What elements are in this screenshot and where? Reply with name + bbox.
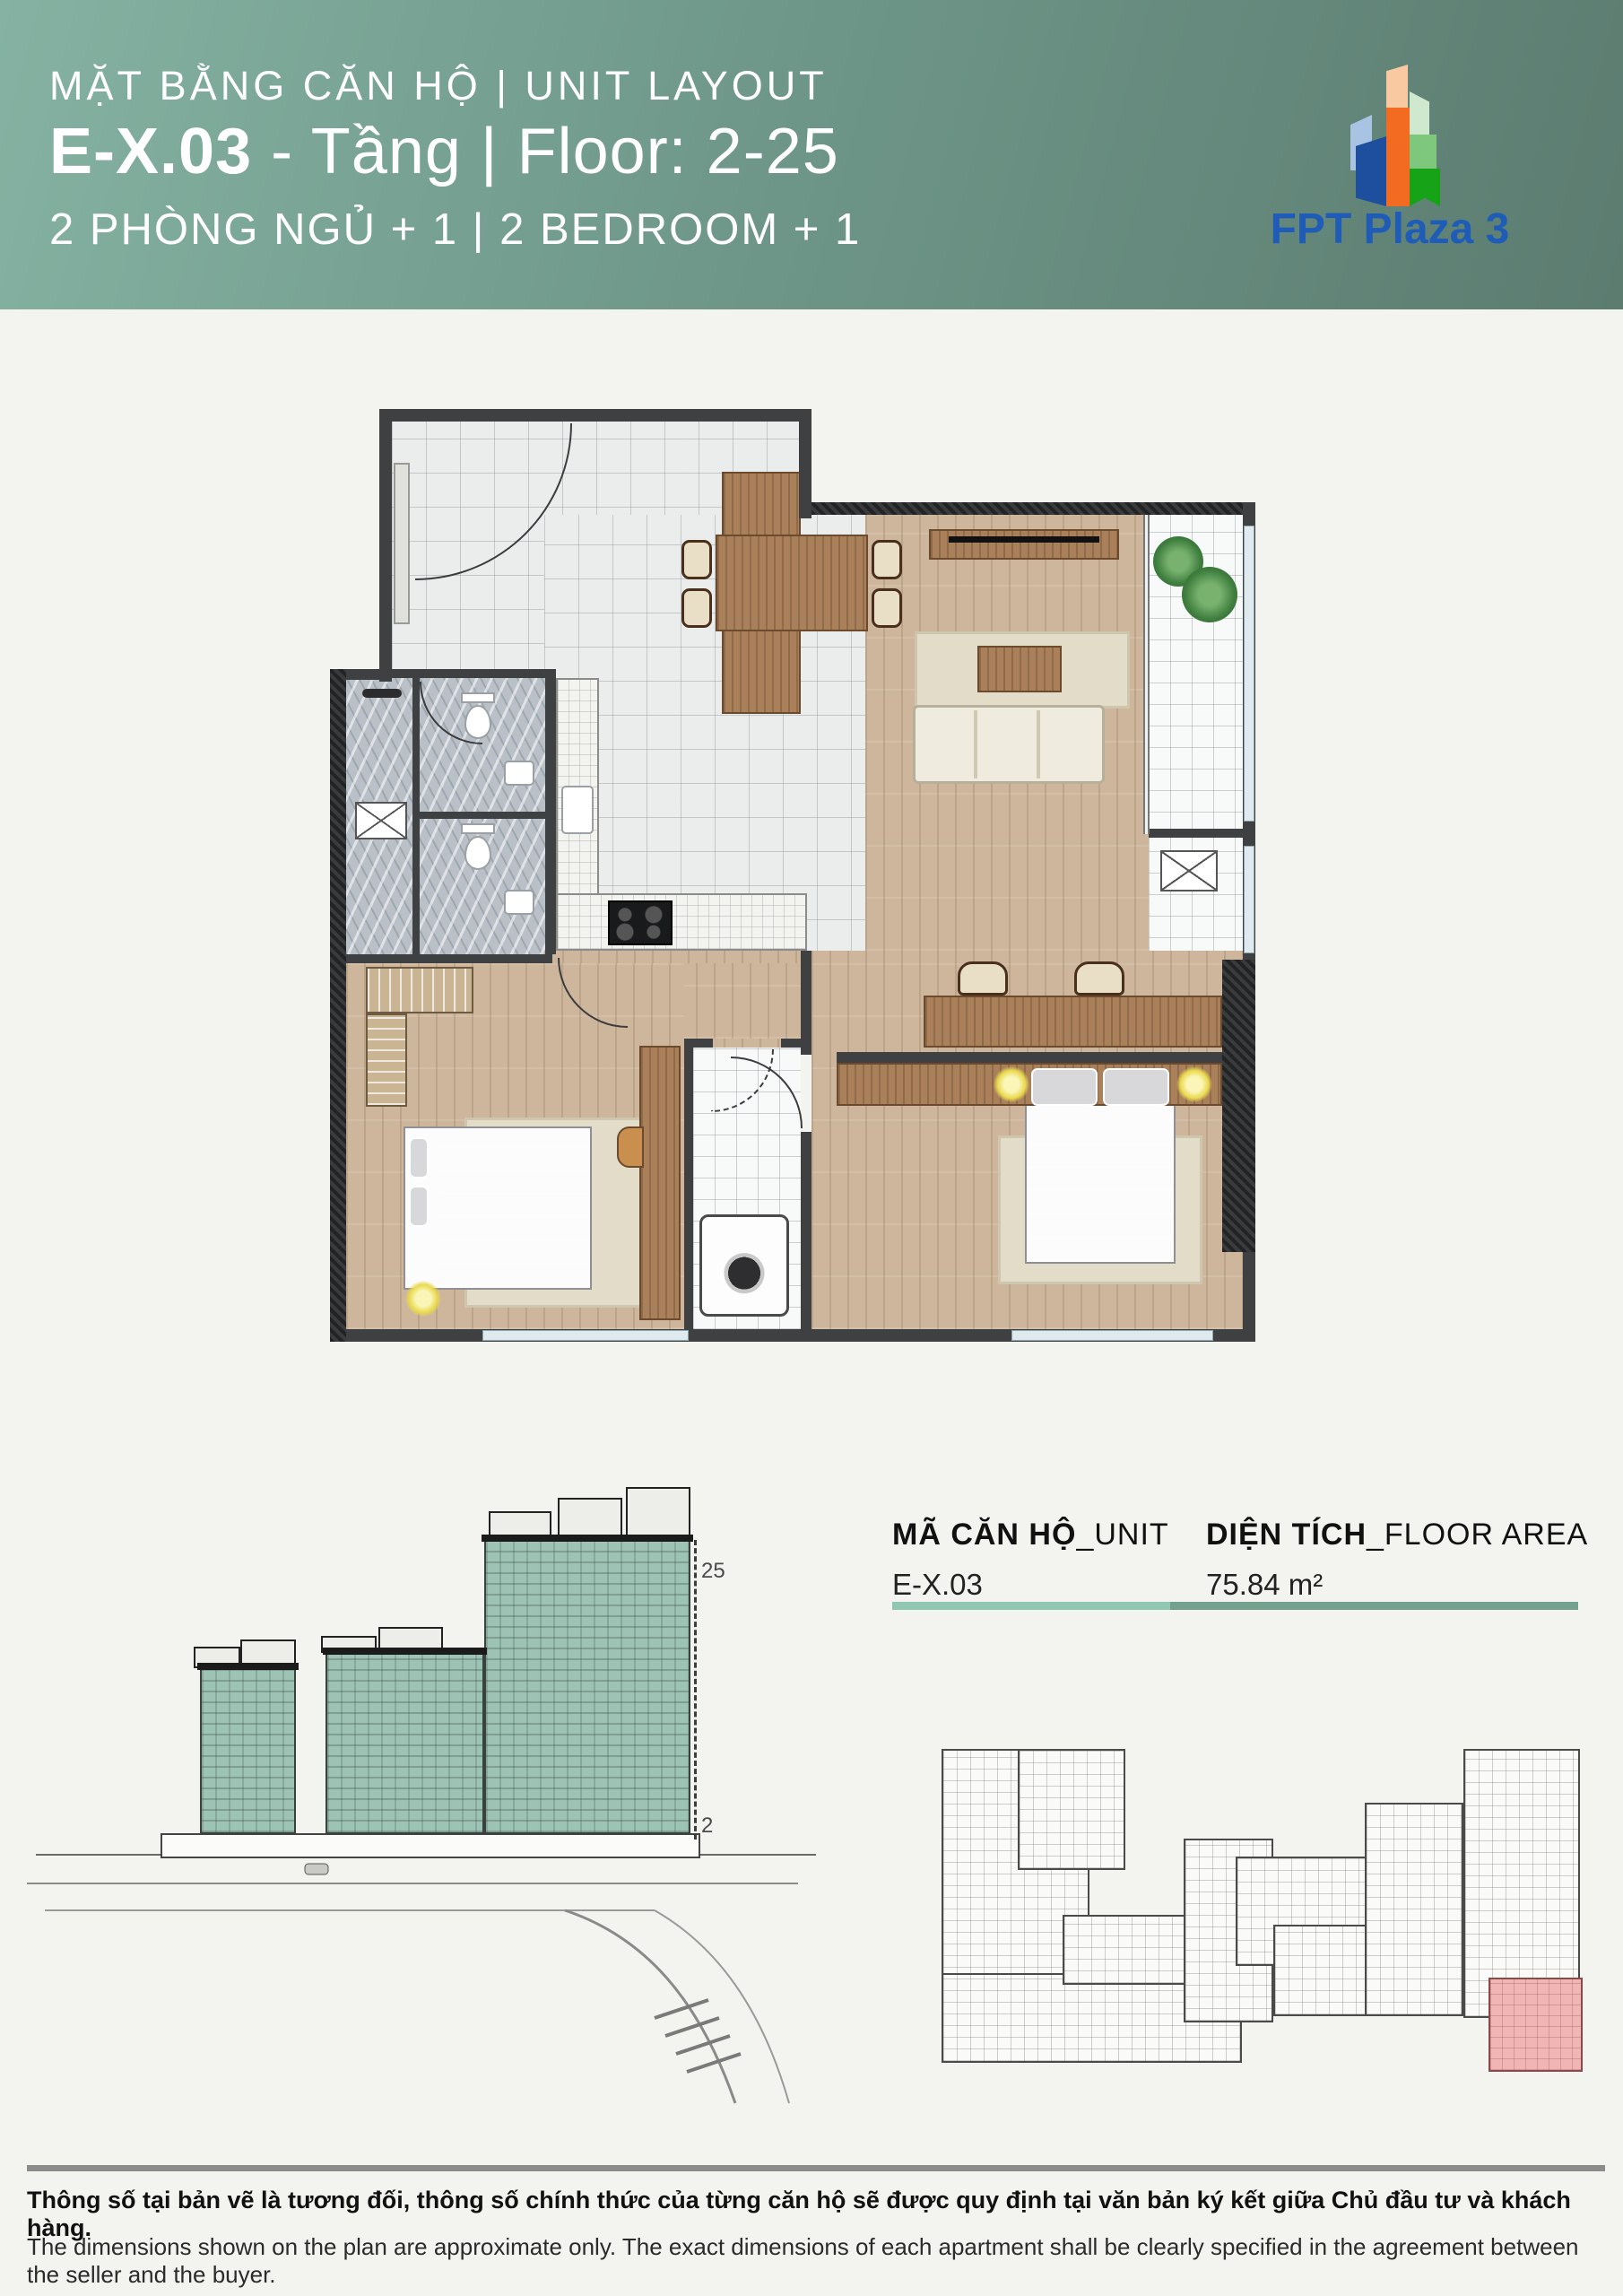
pillow — [409, 1186, 429, 1227]
tower-right — [484, 1540, 690, 1834]
wall — [684, 1039, 713, 1048]
wash-basin — [504, 761, 534, 786]
unit-floor-range: - Tầng | Floor: 2-25 — [252, 116, 839, 187]
tower-middle — [325, 1653, 484, 1834]
bedroom1-wardrobe — [366, 1013, 407, 1107]
logo-building-icon — [1410, 169, 1440, 206]
teal-bar-right — [1170, 1602, 1578, 1610]
bedroom1-wardrobe — [366, 967, 473, 1013]
brochure-page: { "header": { "subtitle": "MẶT BẰNG CĂN … — [0, 0, 1623, 2296]
tower-roof-cap — [323, 1648, 487, 1655]
tower-left — [200, 1668, 296, 1834]
keyplan-highlighted-unit — [1488, 1978, 1583, 2072]
building-elevation: 25 2 — [27, 1462, 834, 2130]
pillow — [1031, 1068, 1098, 1106]
sofa-seam — [974, 710, 977, 778]
balcony-glass-door — [1143, 515, 1150, 834]
dining-table — [716, 535, 868, 631]
dining-chair — [872, 588, 902, 628]
toilet-tank — [461, 823, 495, 834]
wall — [684, 1039, 693, 1329]
tv — [949, 536, 1099, 543]
teal-bar-left — [892, 1602, 1170, 1610]
rooftop-structure — [558, 1498, 622, 1540]
ac-unit — [1160, 850, 1218, 891]
bedside-lamp — [994, 1066, 1029, 1102]
desk-chair — [617, 1126, 644, 1168]
wall — [346, 669, 545, 678]
exterior-wall — [1222, 960, 1255, 1252]
coffee-table — [977, 646, 1062, 692]
logo-building-icon — [1410, 135, 1436, 172]
wall — [837, 1052, 1222, 1063]
bedroom1-window — [482, 1330, 689, 1341]
floor-top-label: 25 — [701, 1559, 725, 1584]
unit-floor-plan — [330, 409, 1255, 1342]
balcony-plant — [1182, 567, 1237, 622]
dining-chair — [872, 540, 902, 579]
exterior-wall — [330, 669, 346, 1342]
page-title: E-X.03 - Tầng | Floor: 2-25 — [49, 115, 839, 188]
desk-chair — [1074, 961, 1124, 996]
wall — [379, 409, 392, 682]
exterior-wall — [811, 502, 1255, 515]
wall — [346, 954, 552, 963]
tower-roof-cap — [482, 1535, 693, 1542]
sofa-seam — [1037, 710, 1040, 778]
pillow — [409, 1137, 429, 1178]
master-blanket — [1027, 1126, 1174, 1262]
wall — [420, 812, 545, 819]
corridor-floor — [678, 963, 811, 1039]
disclaimer-en: The dimensions shown on the plan are app… — [27, 2233, 1605, 2289]
bedroom-count-line: 2 PHÒNG NGỦ + 1 | 2 BEDROOM + 1 — [49, 204, 861, 255]
bedroom1-desk — [639, 1046, 681, 1320]
wall — [545, 669, 556, 954]
wall — [799, 409, 811, 518]
shower-head — [362, 689, 402, 698]
rooftop-structure — [626, 1487, 690, 1540]
tower-roof-cap — [197, 1663, 299, 1670]
bedside-lamp — [1176, 1066, 1212, 1102]
balcony-rail — [1244, 526, 1254, 822]
wall — [379, 409, 811, 422]
logo-building-icon — [1410, 91, 1429, 138]
wall — [801, 1132, 811, 1329]
toilet — [464, 836, 491, 870]
dining-chair — [681, 540, 712, 579]
wall — [412, 678, 420, 954]
bedroom1-blanket — [439, 1128, 590, 1288]
keyplan-wing — [1063, 1915, 1188, 1985]
wall — [801, 951, 811, 1055]
utility-closet — [355, 802, 407, 839]
keyplan-wing — [1365, 1803, 1463, 2016]
unit-code-value: E-X.03 — [892, 1568, 983, 1602]
unit-code: E-X.03 — [49, 116, 252, 187]
logo-building-icon — [1386, 108, 1410, 206]
washing-machine — [699, 1214, 789, 1317]
wash-basin — [504, 890, 534, 915]
logo-building-icon — [1356, 136, 1386, 206]
kitchen-sink — [561, 786, 594, 834]
key-plan — [915, 1749, 1596, 2081]
floor-bottom-label: 2 — [701, 1813, 713, 1839]
floor-lamp — [405, 1281, 441, 1317]
side-window — [1244, 846, 1254, 953]
floor-area-value: 75.84 m² — [1206, 1568, 1323, 1602]
footer-divider — [27, 2165, 1605, 2171]
floor-area-label: DIỆN TÍCH_FLOOR AREA — [1206, 1518, 1588, 1552]
cooktop — [608, 900, 673, 945]
pillow — [1103, 1068, 1169, 1106]
shoe-cabinet — [394, 463, 410, 624]
dining-chair — [681, 588, 712, 628]
page-subtitle: MẶT BẰNG CĂN HỘ | UNIT LAYOUT — [49, 63, 828, 109]
kitchen-counter — [556, 893, 807, 951]
master-window — [1011, 1330, 1213, 1341]
header-banner: MẶT BẰNG CĂN HỘ | UNIT LAYOUT E-X.03 - T… — [0, 0, 1623, 309]
unit-code-label: MÃ CĂN HỘ_UNIT — [892, 1518, 1169, 1552]
master-desk — [924, 996, 1222, 1048]
keyplan-wing — [1018, 1749, 1125, 1870]
sofa — [913, 705, 1105, 784]
tv-console — [929, 529, 1119, 560]
floor-range-dash-line — [694, 1540, 697, 1839]
desk-chair — [958, 961, 1008, 996]
wall — [1149, 829, 1243, 838]
logo-text: FPT Plaza 3 — [1246, 204, 1533, 254]
